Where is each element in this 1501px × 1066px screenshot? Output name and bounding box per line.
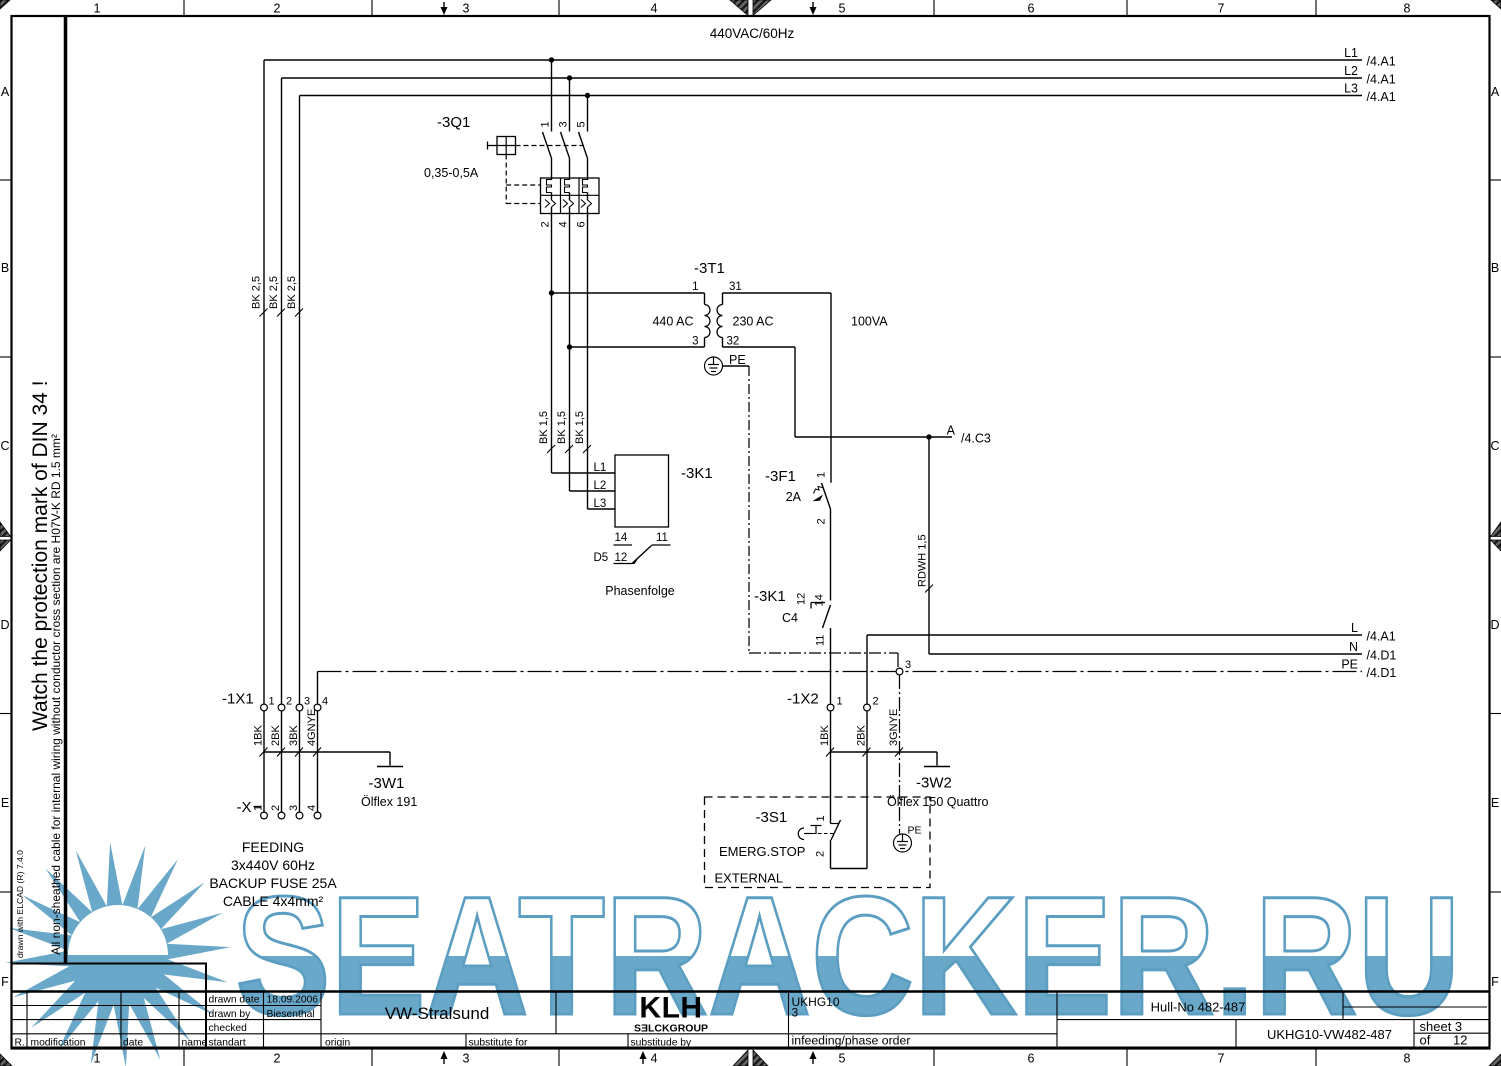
- svg-text:BK 1,5: BK 1,5: [538, 411, 550, 444]
- svg-text:Phasenfolge: Phasenfolge: [605, 584, 675, 598]
- svg-text:4: 4: [651, 2, 658, 16]
- svg-text:31: 31: [729, 281, 742, 293]
- svg-text:R.: R.: [15, 1038, 25, 1049]
- svg-text:1: 1: [816, 472, 828, 478]
- svg-text:/4.A1: /4.A1: [1367, 90, 1396, 104]
- svg-text:12: 12: [796, 593, 808, 605]
- svg-text:L3: L3: [594, 498, 607, 510]
- svg-text:L2: L2: [1344, 64, 1358, 78]
- svg-text:D: D: [1490, 618, 1499, 632]
- svg-text:-3W2: -3W2: [916, 775, 952, 792]
- svg-text:11: 11: [656, 532, 668, 544]
- svg-text:2A: 2A: [786, 490, 802, 504]
- svg-text:SEATRACKER.RU: SEATRACKER.RU: [236, 861, 1461, 1050]
- svg-text:2: 2: [873, 696, 879, 708]
- svg-text:3: 3: [288, 805, 300, 811]
- svg-text:PE: PE: [729, 353, 746, 367]
- svg-text:1: 1: [253, 805, 265, 811]
- svg-text:2: 2: [274, 2, 281, 16]
- svg-text:L2: L2: [594, 480, 607, 492]
- svg-text:3: 3: [463, 2, 470, 16]
- svg-text:-3K1: -3K1: [681, 465, 713, 482]
- svg-text:-1X1: -1X1: [222, 691, 254, 708]
- svg-text:14: 14: [814, 594, 826, 606]
- svg-text:F: F: [1491, 975, 1499, 989]
- svg-text:/4.D1: /4.D1: [1367, 649, 1397, 663]
- svg-text:PE: PE: [1341, 658, 1358, 672]
- svg-text:4: 4: [306, 805, 318, 811]
- svg-text:BK 2,5: BK 2,5: [251, 276, 263, 309]
- svg-text:100VA: 100VA: [851, 315, 888, 329]
- svg-text:4: 4: [558, 221, 570, 227]
- svg-text:7: 7: [1218, 2, 1225, 16]
- svg-text:BK 2,5: BK 2,5: [268, 276, 280, 309]
- svg-text:3: 3: [905, 659, 911, 671]
- svg-text:2: 2: [815, 851, 827, 857]
- svg-text:4GNYE: 4GNYE: [306, 709, 318, 746]
- svg-text:-3Q1: -3Q1: [437, 114, 470, 131]
- svg-text:12: 12: [615, 552, 628, 564]
- svg-text:440 AC: 440 AC: [652, 315, 693, 329]
- svg-text:D: D: [0, 618, 9, 632]
- svg-text:EMERG.STOP: EMERG.STOP: [719, 844, 805, 859]
- svg-text:-3F1: -3F1: [765, 468, 796, 485]
- svg-text:-3T1: -3T1: [694, 260, 725, 277]
- svg-text:L: L: [1351, 621, 1358, 635]
- svg-text:440VAC/60Hz: 440VAC/60Hz: [710, 26, 795, 41]
- svg-text:BK 1,5: BK 1,5: [574, 411, 586, 444]
- svg-text:C4: C4: [782, 611, 798, 625]
- svg-text:C: C: [0, 439, 9, 453]
- svg-text:N: N: [1349, 640, 1358, 654]
- svg-text:E: E: [1491, 796, 1499, 810]
- svg-text:A: A: [1, 85, 10, 99]
- svg-text:1: 1: [692, 281, 698, 293]
- svg-text:1BK: 1BK: [819, 725, 831, 746]
- svg-text:11: 11: [815, 635, 827, 646]
- svg-text:BK 1,5: BK 1,5: [556, 411, 568, 444]
- svg-text:RDWH 1,5: RDWH 1,5: [917, 534, 929, 587]
- svg-text:8: 8: [1404, 1052, 1411, 1066]
- svg-text:6: 6: [1028, 2, 1035, 16]
- svg-text:8: 8: [1404, 2, 1411, 16]
- svg-text:-1X2: -1X2: [787, 691, 819, 708]
- svg-text:5: 5: [839, 2, 846, 16]
- svg-text:FEEDING: FEEDING: [242, 839, 304, 855]
- svg-text:2: 2: [540, 221, 552, 227]
- svg-text:Ölflex 191: Ölflex 191: [361, 795, 417, 809]
- svg-text:1BK: 1BK: [253, 725, 265, 746]
- svg-text:BK 2,5: BK 2,5: [286, 276, 298, 309]
- svg-text:2: 2: [286, 696, 292, 708]
- svg-text:C: C: [1490, 439, 1499, 453]
- svg-text:2BK: 2BK: [856, 725, 868, 746]
- svg-text:230 AC: 230 AC: [733, 315, 774, 329]
- svg-text:3: 3: [558, 121, 570, 127]
- svg-text:L1: L1: [1344, 46, 1358, 60]
- svg-text:/4.A1: /4.A1: [1367, 73, 1396, 87]
- svg-text:E: E: [1, 796, 9, 810]
- svg-text:/4.C3: /4.C3: [961, 432, 991, 446]
- svg-text:drawn with ELCAD (R) 7.4.0: drawn with ELCAD (R) 7.4.0: [15, 850, 25, 958]
- svg-text:B: B: [1491, 261, 1499, 275]
- svg-text:PE: PE: [908, 825, 922, 837]
- svg-text:1: 1: [269, 696, 275, 708]
- svg-text:modification: modification: [31, 1038, 86, 1049]
- svg-text:6: 6: [1028, 1052, 1035, 1066]
- svg-text:-3W1: -3W1: [369, 775, 405, 792]
- svg-text:4: 4: [651, 1052, 658, 1066]
- svg-text:B: B: [1, 261, 9, 275]
- svg-text:2BK: 2BK: [270, 725, 282, 746]
- svg-text:/4.A1: /4.A1: [1367, 630, 1396, 644]
- svg-text:6: 6: [576, 221, 588, 227]
- svg-text:F: F: [1, 975, 9, 989]
- svg-text:32: 32: [727, 336, 740, 348]
- svg-text:5: 5: [576, 121, 588, 127]
- svg-text:name: name: [182, 1038, 208, 1049]
- svg-text:3: 3: [304, 696, 310, 708]
- svg-text:/4.D1: /4.D1: [1367, 666, 1397, 680]
- svg-text:3: 3: [692, 336, 698, 348]
- svg-text:1: 1: [540, 121, 552, 127]
- svg-text:3: 3: [463, 1052, 470, 1066]
- svg-text:1: 1: [94, 2, 101, 16]
- svg-text:14: 14: [615, 532, 628, 544]
- svg-text:0,35-0,5A: 0,35-0,5A: [424, 166, 479, 180]
- svg-text:L3: L3: [1344, 82, 1358, 96]
- svg-text:2: 2: [816, 518, 828, 524]
- svg-text:-3K1: -3K1: [754, 588, 786, 605]
- svg-text:1: 1: [815, 815, 827, 821]
- svg-text:1: 1: [837, 696, 843, 708]
- svg-text:2: 2: [270, 805, 282, 811]
- svg-text:A: A: [947, 424, 956, 438]
- svg-text:4: 4: [322, 696, 328, 708]
- svg-text:L1: L1: [594, 462, 607, 474]
- svg-text:-3S1: -3S1: [756, 809, 788, 826]
- svg-text:7: 7: [1218, 1052, 1225, 1066]
- svg-text:/4.A1: /4.A1: [1367, 55, 1396, 69]
- svg-text:3BK: 3BK: [288, 725, 300, 746]
- svg-text:A: A: [1491, 85, 1500, 99]
- svg-text:D5: D5: [594, 552, 609, 564]
- svg-text:-X: -X: [237, 799, 252, 816]
- svg-text:2: 2: [274, 1052, 281, 1066]
- svg-text:3GNYE: 3GNYE: [888, 709, 900, 746]
- svg-text:5: 5: [839, 1052, 846, 1066]
